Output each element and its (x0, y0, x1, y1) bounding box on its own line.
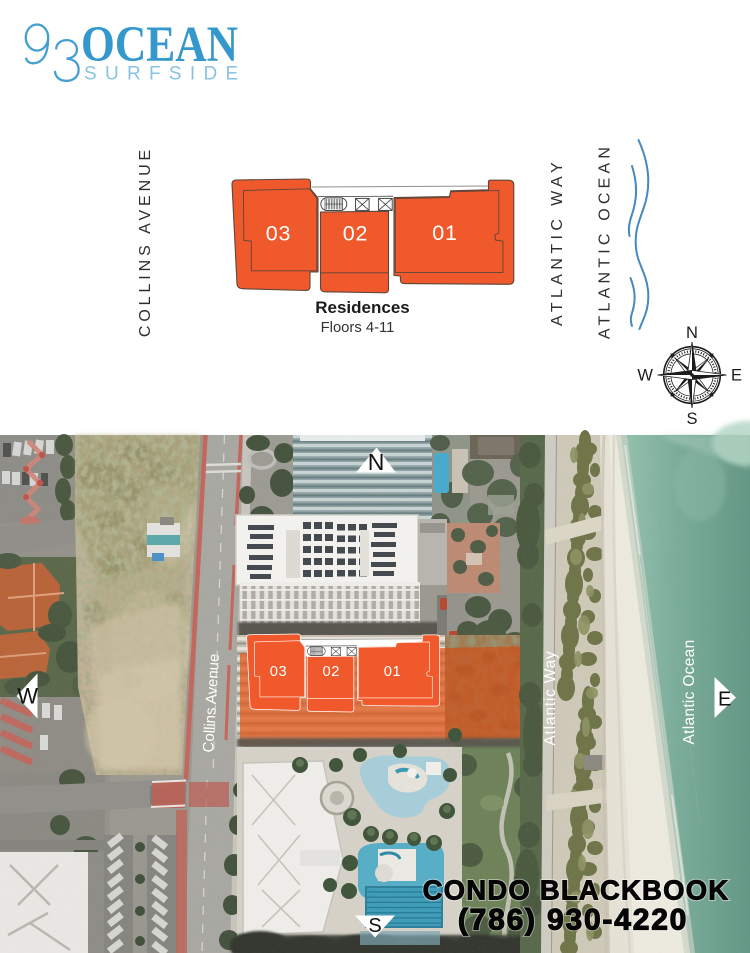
svg-text:Atlantic Ocean: Atlantic Ocean (681, 639, 698, 744)
svg-text:E: E (718, 689, 731, 711)
svg-text:E: E (731, 367, 742, 385)
svg-text:N: N (686, 324, 698, 342)
svg-text:(786) 930-4220: (786) 930-4220 (458, 904, 688, 937)
svg-text:SURFSIDE: SURFSIDE (84, 64, 246, 85)
svg-text:CONDO BLACKBOOK: CONDO BLACKBOOK (423, 875, 730, 906)
svg-text:Atlantic Way: Atlantic Way (542, 650, 559, 745)
svg-text:ATLANTIC WAY: ATLANTIC WAY (549, 158, 566, 326)
svg-text:S: S (368, 915, 381, 937)
svg-text:Floors 4-11: Floors 4-11 (321, 320, 395, 336)
svg-text:ATLANTIC OCEAN: ATLANTIC OCEAN (597, 143, 614, 339)
svg-text:S: S (686, 410, 697, 428)
svg-text:COLLINS AVENUE: COLLINS AVENUE (137, 146, 154, 337)
svg-text:W: W (17, 684, 38, 709)
svg-text:N: N (368, 449, 385, 475)
svg-text:Residences: Residences (315, 298, 410, 317)
svg-text:W: W (637, 367, 653, 385)
